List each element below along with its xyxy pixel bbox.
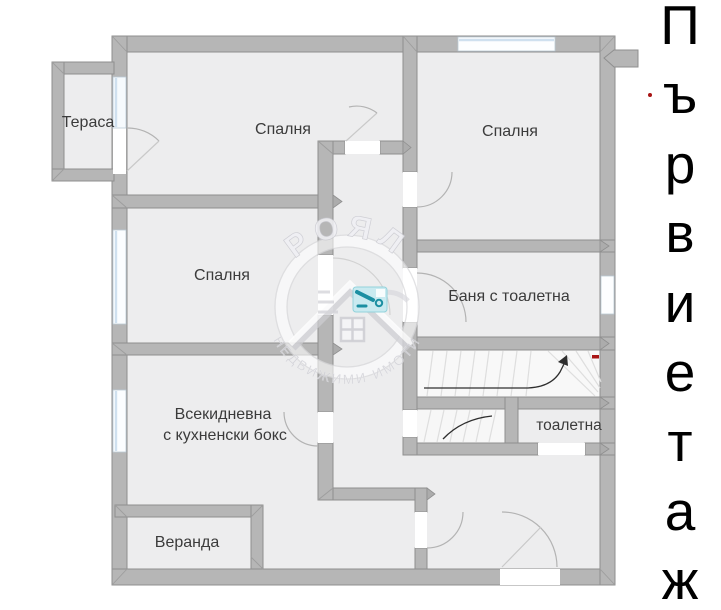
wall-bed1-bed3 bbox=[112, 195, 333, 208]
room-label-veranda: Веранда bbox=[155, 534, 220, 551]
red-mark-stairs bbox=[592, 355, 599, 359]
floor-title-letter: р bbox=[665, 139, 696, 190]
door-gap-entrance bbox=[500, 569, 560, 585]
room-label-bedroom3: Спалня bbox=[194, 267, 250, 284]
door-gap-toilet bbox=[538, 443, 585, 455]
wall-corridor-bottom bbox=[318, 488, 427, 500]
door-gap-living bbox=[318, 412, 333, 443]
floor-plan-drawing: РОЯЛ НЕДВИЖИМИ ИМОТИ Тераса Спалня Спалн… bbox=[0, 0, 721, 610]
door-gap-bedroom2 bbox=[403, 172, 417, 207]
floor-title-letter: ъ bbox=[663, 69, 697, 120]
window-bath bbox=[601, 276, 614, 314]
room-label-living-line1: Всекидневна bbox=[175, 406, 272, 423]
wall-hall-left-a bbox=[415, 488, 427, 512]
floor-plan-image: РОЯЛ НЕДВИЖИМИ ИМОТИ Тераса Спалня Спалн… bbox=[0, 0, 721, 610]
floor-title-letter: ж bbox=[662, 555, 699, 606]
room-label-bedroom1: Спалня bbox=[255, 121, 311, 138]
wall-corridor-right-d bbox=[403, 437, 417, 455]
floor-title-letter: т bbox=[667, 417, 692, 468]
room-label-bath: Баня с тоалетна bbox=[448, 288, 570, 305]
floor-title-letter: П bbox=[660, 0, 700, 51]
wall-veranda-top bbox=[115, 505, 263, 517]
wall-hall-left-b bbox=[415, 548, 427, 569]
floor-title-letter: в bbox=[665, 208, 694, 259]
terrace-wall-bottom bbox=[52, 169, 114, 181]
wall-stairs-toilet bbox=[505, 397, 518, 443]
floor-title-letter: и bbox=[665, 278, 696, 329]
red-dot-mark bbox=[648, 93, 652, 97]
room-label-living-line2: с кухненски бокс bbox=[163, 427, 287, 444]
floor-title-vertical: П ъ р в и е т а ж bbox=[642, 0, 718, 606]
wall-bed2-bath bbox=[403, 240, 615, 252]
wall-corridor-top-b bbox=[380, 141, 403, 154]
room-label-terrace: Тераса bbox=[62, 114, 115, 131]
floor-title-letter: а bbox=[665, 486, 696, 537]
room-label-toilet: тоалетна bbox=[536, 417, 602, 434]
room-label-bedroom2: Спалня bbox=[482, 123, 538, 140]
floor-title-letter: е bbox=[665, 347, 696, 398]
door-gap-hall bbox=[415, 512, 427, 548]
door-gap-terrace bbox=[113, 128, 126, 174]
door-gap-bedroom1 bbox=[345, 141, 380, 154]
wall-bath-stairs bbox=[403, 337, 615, 350]
opening-stairs bbox=[403, 410, 417, 437]
wall-corridor-left-c bbox=[318, 443, 333, 500]
watermark-camera-icon bbox=[353, 287, 387, 312]
wall-below-stairs-a bbox=[403, 443, 538, 455]
